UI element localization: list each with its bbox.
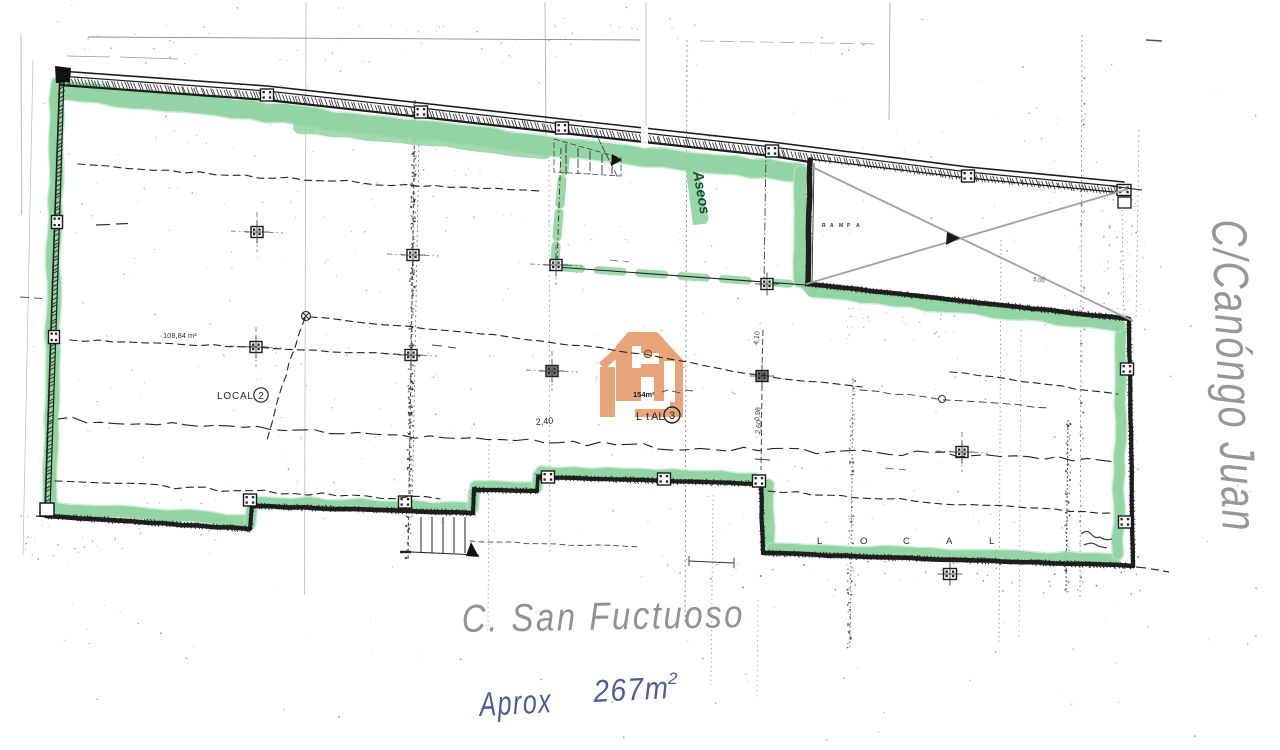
- svg-text:C/Canóngo Juan: C/Canóngo Juan: [1201, 218, 1267, 533]
- svg-text:L: L: [817, 536, 822, 547]
- svg-text:267m: 267m: [592, 671, 671, 710]
- svg-text:AL: AL: [651, 411, 664, 423]
- svg-text:L: L: [636, 411, 642, 423]
- svg-text:A: A: [856, 223, 860, 229]
- svg-text:LOCAL: LOCAL: [217, 391, 254, 402]
- svg-text:2,40: 2,40: [535, 416, 553, 427]
- svg-text:C: C: [903, 536, 910, 547]
- svg-text:C. San Fuctuoso: C. San Fuctuoso: [461, 591, 745, 640]
- svg-text:M: M: [839, 223, 843, 229]
- svg-text:R: R: [822, 223, 826, 229]
- svg-text:O: O: [860, 536, 867, 547]
- svg-text:Aprox: Aprox: [477, 683, 553, 724]
- svg-text:2: 2: [646, 353, 650, 360]
- svg-text:A: A: [830, 223, 834, 229]
- svg-text:t: t: [646, 411, 649, 423]
- svg-text:3: 3: [669, 410, 675, 422]
- svg-text:A: A: [946, 536, 953, 547]
- svg-text:154m²: 154m²: [633, 390, 655, 399]
- svg-text:2: 2: [667, 669, 678, 688]
- svg-text:108,84 m²: 108,84 m²: [163, 331, 197, 340]
- svg-text:L: L: [989, 536, 994, 547]
- svg-text:2: 2: [258, 391, 264, 402]
